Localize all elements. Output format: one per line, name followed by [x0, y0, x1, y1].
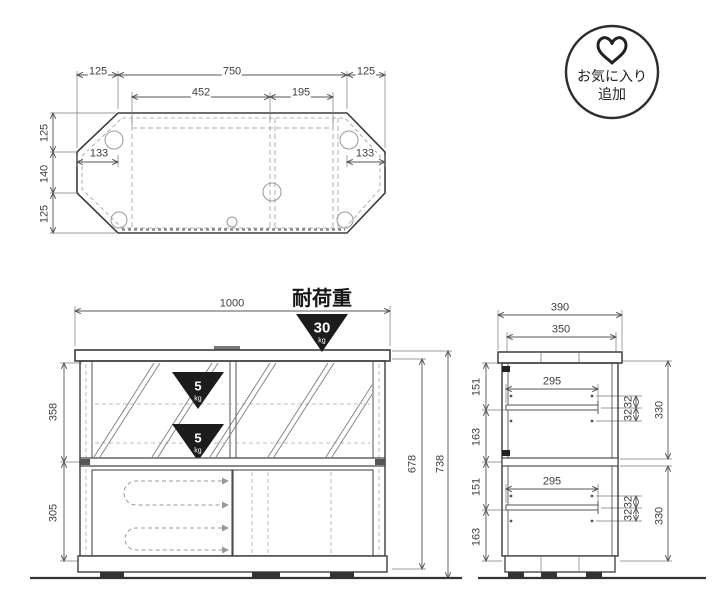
shelf-load-unit-2: kg: [193, 448, 202, 455]
front-view-drawing: [30, 306, 462, 578]
dim-front-upper-height: 358: [49, 402, 60, 422]
side-extension-lines: [482, 310, 672, 561]
front-top-panel: [75, 350, 390, 361]
dim-top-corner-right: 133: [355, 149, 375, 160]
side-feet: [508, 572, 602, 577]
dim-top-depth-mid: 140: [40, 164, 51, 184]
door-slide-arrows: [124, 481, 222, 550]
load-capacity-unit: kg: [317, 338, 326, 345]
dim-side-shelf-depth-top: 295: [542, 377, 562, 388]
front-middle-shelf: [80, 458, 385, 466]
dim-front-width: 1000: [219, 299, 245, 310]
dim-top-width-right: 125: [356, 67, 376, 78]
front-base-plinth: [78, 556, 387, 572]
dim-side-seg-3: 151: [472, 477, 483, 497]
dim-front-body-height: 678: [408, 454, 419, 474]
hinge-mark-top: [502, 366, 510, 372]
dim-side-shelf-depth-bottom: 295: [542, 477, 562, 488]
shelf-end-cap-right: [375, 459, 385, 465]
front-extension-lines: [60, 306, 452, 569]
side-top-panel: [498, 352, 622, 363]
dim-side-seg-4: 163: [472, 527, 483, 547]
load-capacity-title: 耐荷重: [291, 289, 353, 309]
dim-side-opening-bottom: 330: [655, 506, 666, 526]
dim-front-lower-height: 305: [49, 503, 60, 523]
door-arrowheads: [222, 478, 229, 554]
technical-drawing-page: 125 750 125 452 195 125 140 125 133 133 …: [0, 0, 719, 612]
dim-side-seg-1: 151: [472, 377, 483, 397]
adjustable-shelf-bottom: [506, 505, 598, 510]
sliding-door-right: [232, 470, 373, 556]
dim-top-width-center: 750: [222, 67, 242, 78]
badge-label-line2[interactable]: 追加: [598, 87, 626, 101]
dim-side-opening-top: 330: [655, 400, 666, 420]
dim-side-pitch-2b: 32: [624, 508, 635, 522]
shelf-load-value-1: 5: [193, 380, 202, 393]
adjustable-shelf-top: [506, 405, 598, 410]
shelf-end-cap-left: [80, 459, 90, 465]
dim-front-total-height: 738: [436, 454, 447, 474]
side-view-drawing: [478, 310, 706, 578]
dim-top-depth-bottom: 125: [40, 204, 51, 224]
dim-top-inner-left: 452: [191, 88, 211, 99]
dim-side-inner-depth: 350: [551, 325, 571, 336]
side-base-plinth: [505, 556, 615, 572]
dim-top-width-left: 125: [88, 67, 108, 78]
dim-side-pitch-1b: 32: [624, 408, 635, 422]
hinge-mark-middle: [502, 450, 510, 456]
dim-top-depth-top: 125: [40, 123, 51, 143]
dim-side-seg-2: 163: [472, 427, 483, 447]
load-capacity-value: 30: [313, 321, 332, 336]
shelf-load-value-2: 5: [193, 432, 202, 445]
dim-top-corner-left: 133: [89, 149, 109, 160]
side-middle-shelf: [502, 458, 618, 466]
badge-label-line1[interactable]: お気に入り: [577, 69, 647, 83]
shelf-load-unit-1: kg: [193, 396, 202, 403]
front-feet: [100, 572, 354, 577]
dim-top-inner-right: 195: [291, 88, 311, 99]
glass-door-frames: [92, 361, 373, 458]
sliding-door-left: [92, 470, 233, 556]
dim-side-depth: 390: [550, 303, 570, 314]
